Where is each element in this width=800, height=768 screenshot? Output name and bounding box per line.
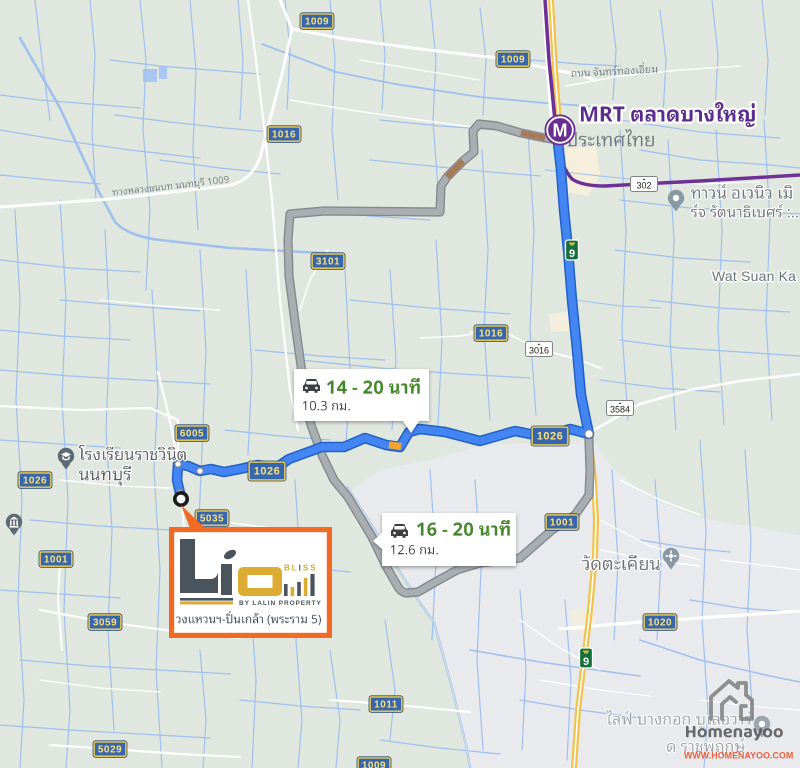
svg-text:3016: 3016 bbox=[529, 346, 549, 356]
svg-text:1020: 1020 bbox=[648, 618, 672, 629]
svg-text:1001: 1001 bbox=[550, 518, 574, 529]
svg-text:1009: 1009 bbox=[501, 55, 525, 66]
svg-text:1016: 1016 bbox=[479, 329, 503, 340]
svg-text:9: 9 bbox=[569, 248, 575, 260]
svg-text:M: M bbox=[553, 121, 568, 141]
svg-text:3101: 3101 bbox=[316, 257, 340, 268]
svg-text:BLISS: BLISS bbox=[284, 564, 318, 573]
svg-text:1026: 1026 bbox=[23, 476, 47, 487]
svg-text:1009: 1009 bbox=[362, 761, 386, 768]
svg-text:3059: 3059 bbox=[93, 618, 117, 629]
svg-text:9: 9 bbox=[583, 656, 589, 668]
svg-text:3584: 3584 bbox=[610, 405, 630, 415]
svg-text:1009: 1009 bbox=[305, 17, 329, 28]
svg-text:1026: 1026 bbox=[254, 466, 280, 478]
svg-text:1016: 1016 bbox=[272, 130, 296, 141]
svg-text:5035: 5035 bbox=[200, 514, 224, 525]
svg-text:6005: 6005 bbox=[180, 429, 204, 440]
svg-text:BY LALIN PROPERTY: BY LALIN PROPERTY bbox=[239, 600, 322, 607]
svg-text:WWW.HOMENAYOO.COM: WWW.HOMENAYOO.COM bbox=[684, 751, 793, 761]
svg-text:1026: 1026 bbox=[537, 431, 563, 443]
svg-text:302: 302 bbox=[636, 181, 651, 191]
svg-text:1001: 1001 bbox=[44, 555, 68, 566]
svg-text:Wat Suan Ka: Wat Suan Ka bbox=[712, 268, 796, 284]
svg-text:5029: 5029 bbox=[98, 745, 122, 756]
svg-text:1011: 1011 bbox=[374, 700, 398, 711]
